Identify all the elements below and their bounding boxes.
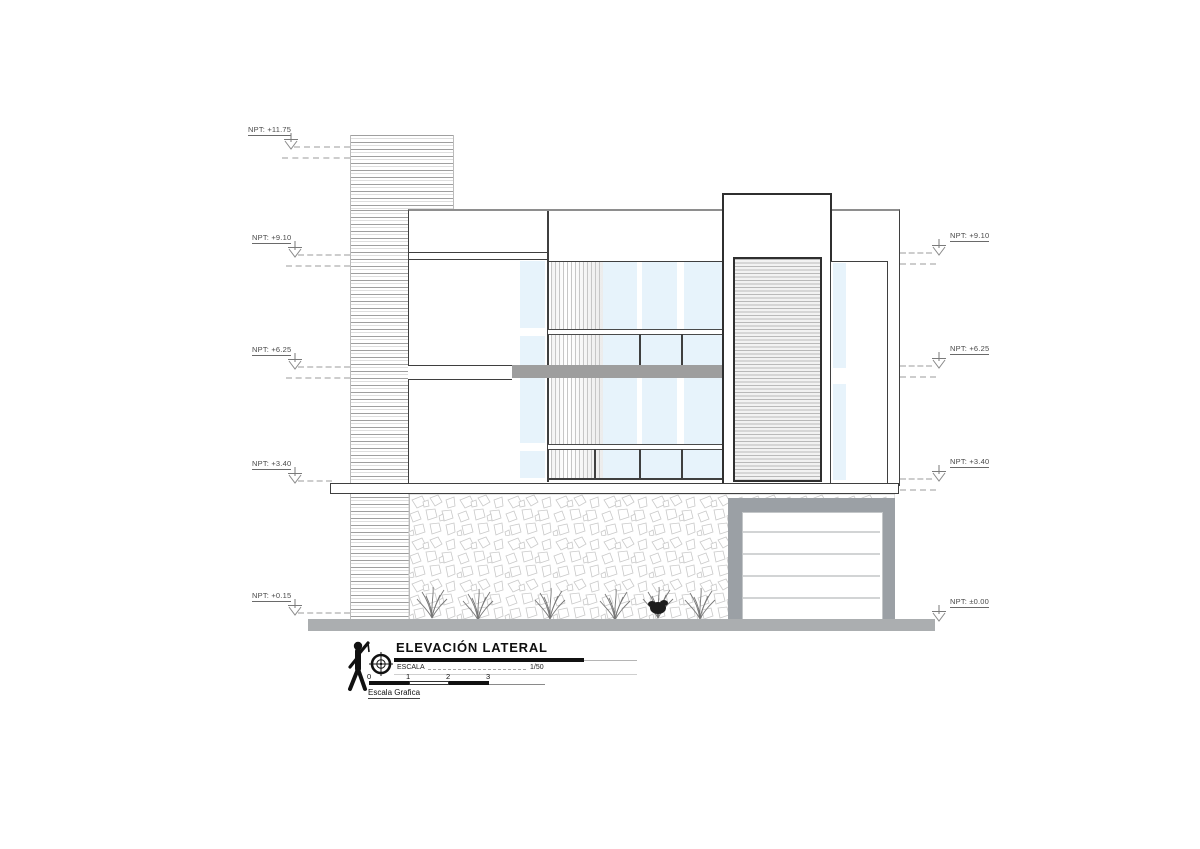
cladding-strip-left (350, 210, 410, 620)
window-rail (548, 444, 722, 450)
scale-leader-line (428, 669, 526, 670)
glass-mullion (677, 378, 684, 444)
leader-dashes (900, 376, 936, 378)
level-marker-icon (280, 133, 302, 151)
leader-dashes (294, 146, 350, 148)
target-icon (368, 651, 394, 677)
window-sill (548, 478, 722, 480)
cladding-strip-top (350, 135, 454, 211)
level-marker-icon (284, 353, 306, 371)
garage-door-seam (743, 575, 880, 577)
planting-row (400, 584, 730, 620)
facade-divider (547, 211, 549, 482)
leader-dashes (298, 612, 350, 614)
glass-mullion (637, 378, 642, 444)
garage-door-seam (743, 597, 880, 599)
graphic-scale-segment (449, 681, 489, 685)
ground-line (308, 619, 935, 631)
window-frame (594, 449, 596, 479)
leader-dashes (900, 263, 936, 265)
scale-value: 1/50 (530, 664, 544, 671)
level-marker-icon (284, 599, 306, 617)
scale-tick: 0 (367, 672, 371, 681)
level-marker-label: NPT: +3.40 (950, 457, 989, 468)
curtain-wall-head (548, 261, 722, 262)
scale-label: ESCALA (397, 664, 425, 671)
graphic-scale-segment (409, 681, 449, 685)
right-window-mullion (833, 368, 846, 384)
garage-door-seam (743, 553, 880, 555)
leader-dashes (900, 489, 936, 491)
level-marker-label: NPT: ±0.00 (950, 597, 989, 608)
floor-slab-band (512, 365, 733, 378)
level-marker-icon (928, 465, 950, 483)
scale-tick: 3 (486, 672, 490, 681)
leader-dashes (298, 366, 350, 368)
graphic-scale-segment (369, 681, 409, 685)
drawing-title: ELEVACIÓN LATERAL (396, 640, 548, 655)
leader-dashes (298, 254, 350, 256)
title-underline-extension (584, 660, 637, 661)
window-frame (681, 449, 683, 479)
window-frame (681, 334, 683, 365)
floor-slab-left (408, 365, 512, 380)
level-marker-icon (928, 605, 950, 623)
plant-dark (643, 587, 673, 618)
parapet-line (409, 259, 548, 260)
scale-tick: 2 (446, 672, 450, 681)
graphic-scale-baseline (489, 684, 545, 685)
glass-mullion (677, 261, 684, 330)
leader-dashes (282, 157, 350, 159)
window-frame (639, 449, 641, 479)
garage-door-seam (743, 531, 880, 533)
scale-caption: Escala Grafica (368, 688, 420, 699)
level-marker-icon (284, 241, 306, 259)
leader-dashes (900, 478, 932, 480)
leader-dashes (900, 365, 932, 367)
level-marker-label: NPT: +6.25 (950, 344, 989, 355)
ground-floor-slab (330, 483, 899, 494)
plant (685, 588, 715, 619)
plant (463, 589, 493, 620)
title-underline (394, 658, 584, 662)
level-marker-icon (928, 352, 950, 370)
plant (535, 588, 565, 619)
level-marker-label: NPT: +9.10 (950, 231, 989, 242)
level-marker-icon (284, 467, 306, 485)
leader-dashes (298, 480, 332, 482)
plant (600, 589, 630, 620)
level-marker-icon (928, 239, 950, 257)
leader-dashes (286, 377, 350, 379)
scale-row-rule (394, 674, 637, 675)
scale-tick: 1 (406, 672, 410, 681)
elevation-sheet: NPT: +11.75 NPT: +9.10 NPT: +6.25 NPT: +… (0, 0, 1200, 849)
tower-louver-panel (733, 257, 822, 482)
side-window-mullion (520, 328, 545, 336)
side-window-mullion (520, 443, 545, 451)
window-frame (639, 334, 641, 365)
window-rail (548, 329, 722, 335)
glass-mullion (637, 261, 642, 330)
leader-dashes (286, 265, 350, 267)
leader-dashes (900, 252, 932, 254)
plant (417, 587, 447, 618)
garage-door (742, 512, 883, 622)
parapet-line (409, 252, 548, 253)
